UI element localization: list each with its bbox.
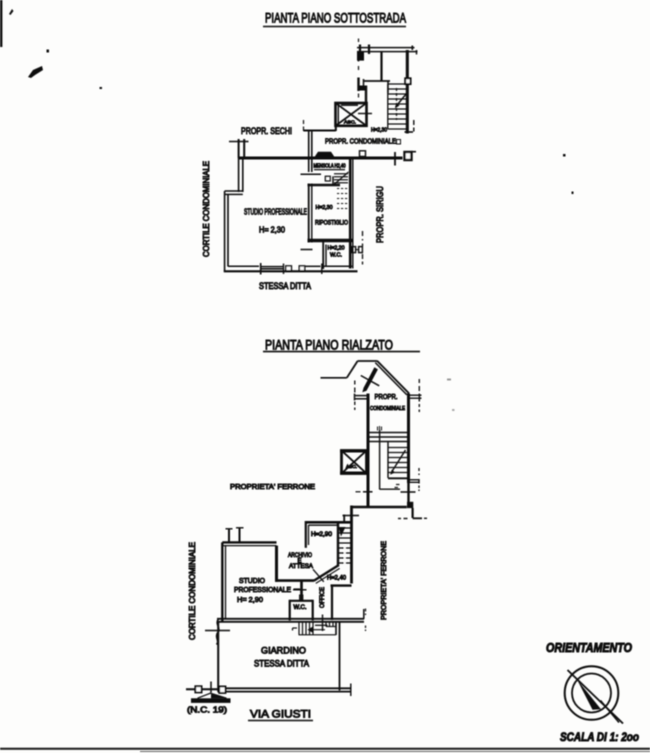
- svg-text:SCALA DI 1: 2oo: SCALA DI 1: 2oo: [560, 732, 639, 744]
- svg-text:W.C.: W.C.: [330, 253, 342, 259]
- svg-text:ORIENTAMENTO: ORIENTAMENTO: [546, 641, 632, 655]
- svg-text:CONDOMINIALE: CONDOMINIALE: [370, 406, 405, 412]
- svg-text:H= 2,30: H= 2,30: [259, 225, 285, 235]
- svg-text:H=2,90: H=2,90: [311, 531, 332, 538]
- svg-text:PROFESSIONALE: PROFESSIONALE: [234, 585, 291, 594]
- svg-text:ASC.: ASC.: [344, 120, 356, 125]
- svg-text:CORTILE CONDOMINIALE: CORTILE CONDOMINIALE: [202, 161, 211, 257]
- svg-text:GIARDINO: GIARDINO: [261, 646, 306, 656]
- svg-text:PIANTA PIANO RIALZATO: PIANTA PIANO RIALZATO: [265, 338, 393, 353]
- svg-text:W.C.: W.C.: [294, 605, 307, 611]
- svg-text:VIA GIUSTI: VIA GIUSTI: [250, 709, 311, 721]
- svg-text:STUDIO PROFESSIONALE: STUDIO PROFESSIONALE: [244, 208, 307, 217]
- svg-text:CORTILE CONDOMINIALE: CORTILE CONDOMINIALE: [188, 542, 197, 640]
- svg-text:ASC.: ASC.: [346, 464, 357, 469]
- svg-text:PROPR. SIRIGU: PROPR. SIRIGU: [375, 186, 385, 243]
- svg-text:H=2,40: H=2,40: [327, 575, 347, 582]
- svg-text:RIPOSTIGLIO: RIPOSTIGLIO: [315, 220, 348, 227]
- svg-text:STUDIO: STUDIO: [239, 576, 265, 585]
- svg-text:H=2,20: H=2,20: [328, 246, 345, 252]
- svg-text:(N.C. 19): (N.C. 19): [187, 706, 227, 715]
- svg-text:H=2,30: H=2,30: [371, 128, 387, 134]
- svg-text:PROPRIETA' FERRONE: PROPRIETA' FERRONE: [230, 482, 315, 491]
- svg-text:PROPRIETA' FERRONE: PROPRIETA' FERRONE: [379, 541, 388, 620]
- svg-text:PIANTA PIANO SOTTOSTRADA: PIANTA PIANO SOTTOSTRADA: [265, 11, 406, 26]
- svg-text:ATTESA: ATTESA: [289, 563, 314, 570]
- svg-text:H= 2,90: H= 2,90: [237, 595, 263, 604]
- svg-text:PROPR. CONDOMINIALE: PROPR. CONDOMINIALE: [325, 137, 396, 146]
- svg-text:STESSA DITTA: STESSA DITTA: [259, 281, 311, 291]
- svg-text:OFFICE: OFFICE: [319, 587, 326, 608]
- svg-text:STESSA DITTA: STESSA DITTA: [254, 659, 309, 669]
- svg-text:PROPR.: PROPR.: [375, 392, 398, 401]
- svg-text:PROPR. SECHI: PROPR. SECHI: [241, 126, 292, 137]
- svg-text:H=2,30: H=2,30: [316, 205, 333, 211]
- svg-text:MENSOLA H2,40: MENSOLA H2,40: [314, 164, 346, 170]
